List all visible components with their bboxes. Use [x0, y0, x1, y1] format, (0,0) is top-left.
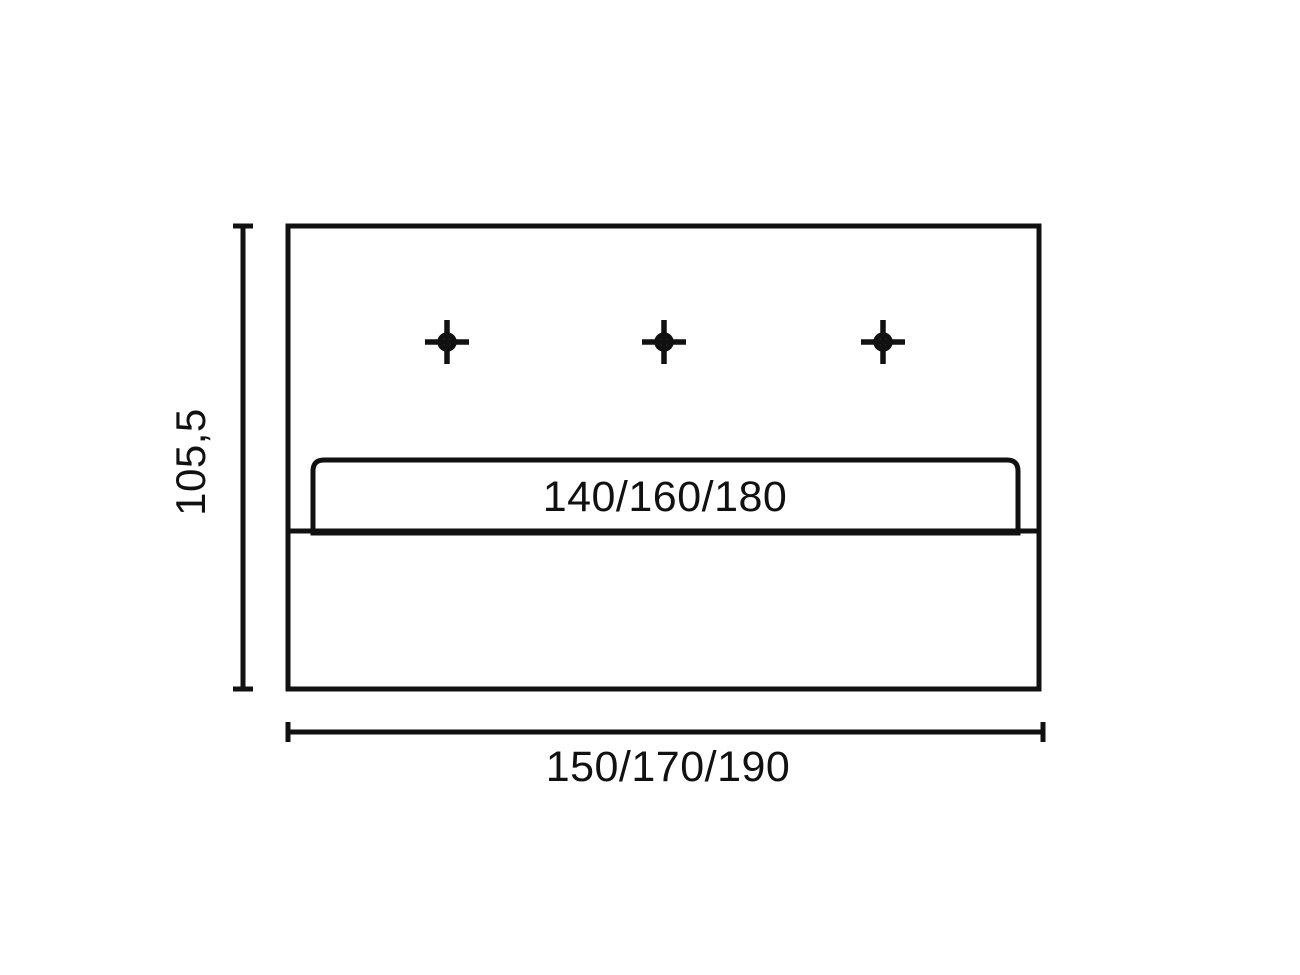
inner-width-label: 140/160/180	[543, 473, 788, 521]
height-dimension-label: 105,5	[167, 408, 214, 516]
hole-marker-crosshair-icon	[642, 320, 686, 364]
drawing-canvas: 140/160/180 105,5	[0, 0, 1300, 975]
hole-marker-crosshair-icon	[425, 320, 469, 364]
width-dimension-label: 150/170/190	[546, 743, 791, 791]
panel-dimension-drawing: 140/160/180 105,5	[0, 0, 1300, 975]
width-dimension-line	[288, 722, 1043, 742]
hole-marker-crosshair-icon	[861, 320, 905, 364]
height-dimension-line	[233, 226, 253, 689]
